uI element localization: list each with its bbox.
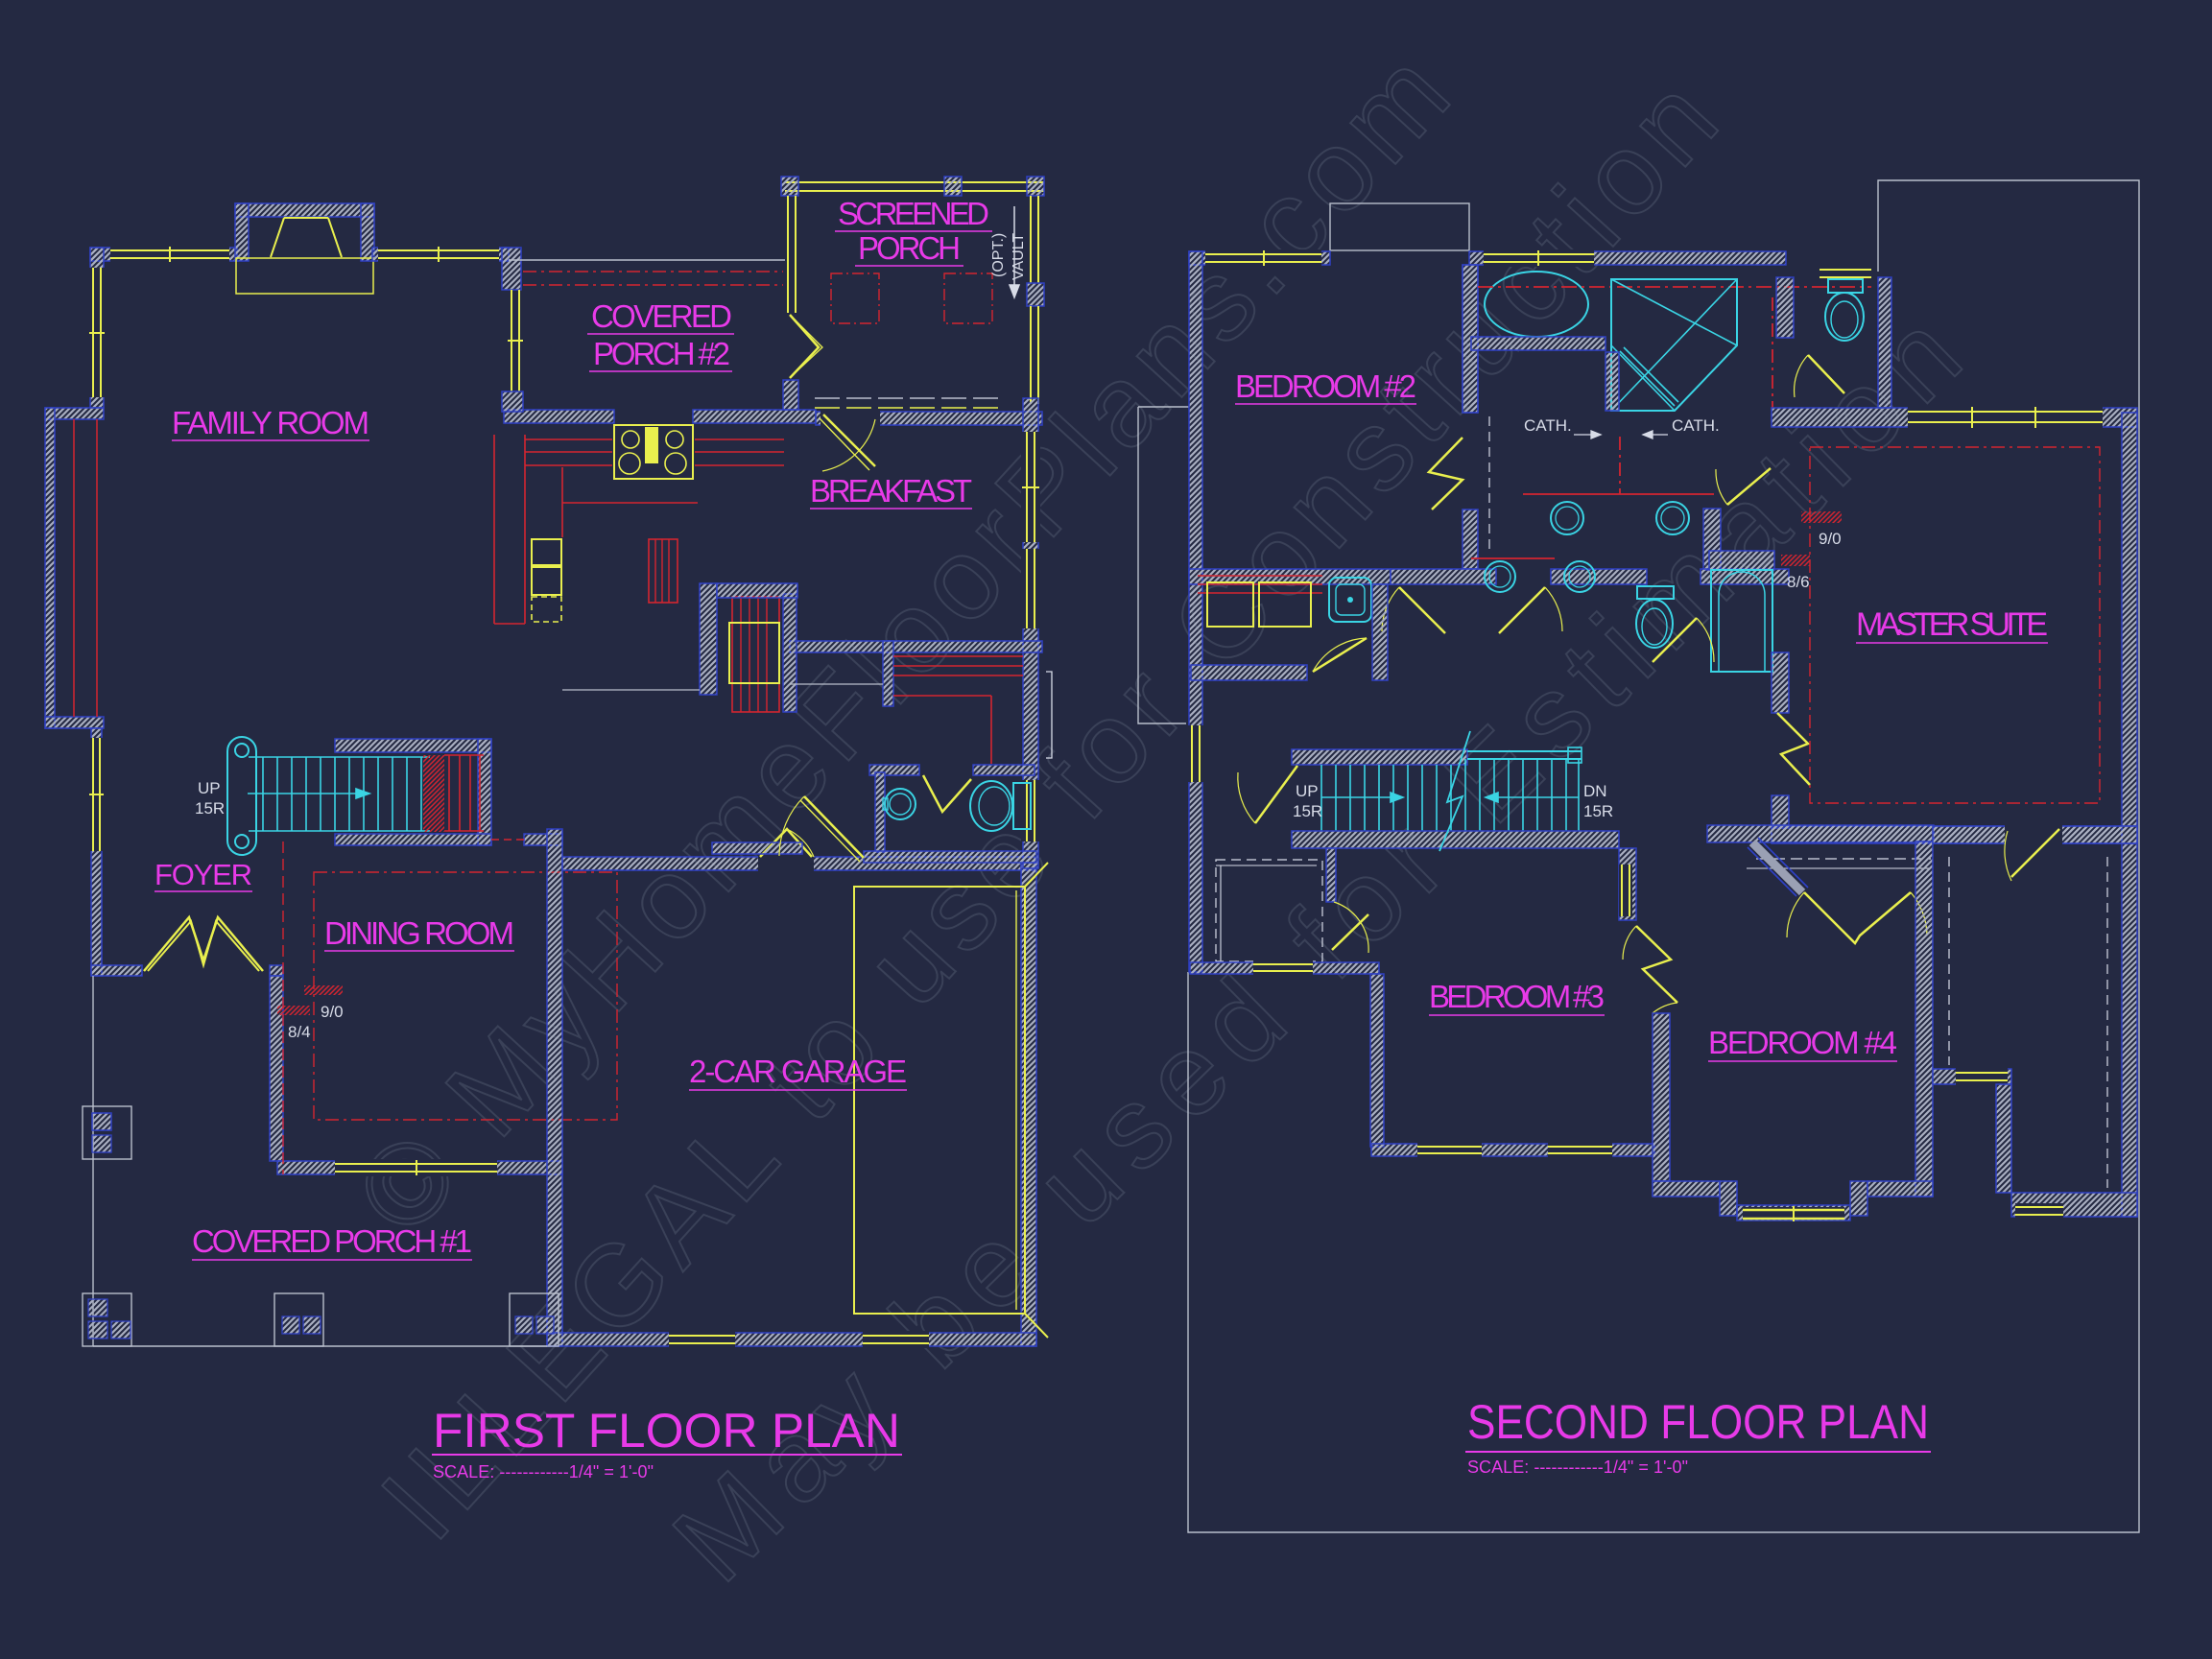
svg-text:8/6: 8/6 — [1787, 573, 1810, 591]
svg-text:8/4: 8/4 — [288, 1023, 311, 1041]
svg-text:(OPT.): (OPT.) — [990, 233, 1007, 277]
svg-text:BREAKFAST: BREAKFAST — [810, 473, 972, 509]
svg-text:FOYER: FOYER — [155, 858, 252, 891]
svg-text:MASTER SUITE: MASTER SUITE — [1856, 606, 2048, 643]
svg-text:FAMILY ROOM: FAMILY ROOM — [172, 405, 369, 440]
svg-text:PORCH #2: PORCH #2 — [593, 336, 730, 371]
svg-text:DN: DN — [1583, 782, 1607, 800]
svg-text:9/0: 9/0 — [321, 1003, 344, 1021]
svg-text:9/0: 9/0 — [1819, 530, 1842, 548]
svg-text:15R: 15R — [1583, 802, 1613, 820]
svg-text:UP: UP — [198, 779, 221, 797]
svg-text:VAULT: VAULT — [1011, 233, 1027, 280]
svg-text:15R: 15R — [1293, 802, 1322, 820]
svg-text:2-CAR GARAGE: 2-CAR GARAGE — [689, 1054, 907, 1089]
svg-text:BEDROOM #4: BEDROOM #4 — [1708, 1025, 1897, 1060]
svg-text:CATH.: CATH. — [1524, 416, 1572, 435]
svg-text:SCREENED: SCREENED — [838, 196, 989, 231]
svg-text:SCALE: ------------1/4" = 1'-0: SCALE: ------------1/4" = 1'-0" — [1467, 1458, 1688, 1477]
svg-text:SECOND FLOOR PLAN: SECOND FLOOR PLAN — [1467, 1395, 1929, 1449]
svg-text:FIRST FLOOR PLAN: FIRST FLOOR PLAN — [433, 1404, 900, 1458]
svg-text:UP: UP — [1296, 782, 1319, 800]
svg-text:COVERED PORCH #1: COVERED PORCH #1 — [192, 1223, 472, 1259]
svg-text:DINING ROOM: DINING ROOM — [324, 915, 514, 951]
svg-text:BEDROOM #3: BEDROOM #3 — [1429, 979, 1605, 1014]
svg-text:COVERED: COVERED — [591, 298, 732, 334]
svg-text:CATH.: CATH. — [1672, 416, 1720, 435]
svg-text:BEDROOM #2: BEDROOM #2 — [1235, 368, 1416, 404]
svg-text:SCALE: ------------1/4" = 1'-0: SCALE: ------------1/4" = 1'-0" — [433, 1462, 654, 1481]
svg-text:15R: 15R — [195, 799, 225, 818]
svg-text:PORCH: PORCH — [858, 230, 961, 266]
